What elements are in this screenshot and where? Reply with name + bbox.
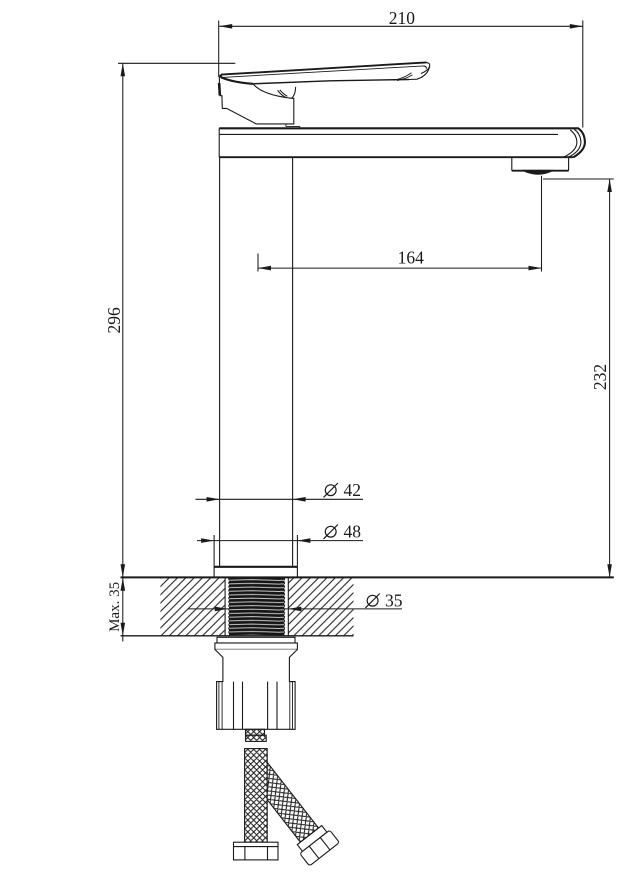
svg-text:42: 42	[344, 480, 362, 500]
svg-text:232: 232	[590, 364, 610, 390]
svg-text:48: 48	[344, 522, 362, 542]
svg-text:Max. 35: Max. 35	[107, 582, 123, 632]
svg-text:210: 210	[389, 8, 416, 28]
svg-text:164: 164	[398, 248, 425, 268]
svg-text:296: 296	[104, 307, 124, 334]
svg-text:35: 35	[385, 591, 403, 611]
